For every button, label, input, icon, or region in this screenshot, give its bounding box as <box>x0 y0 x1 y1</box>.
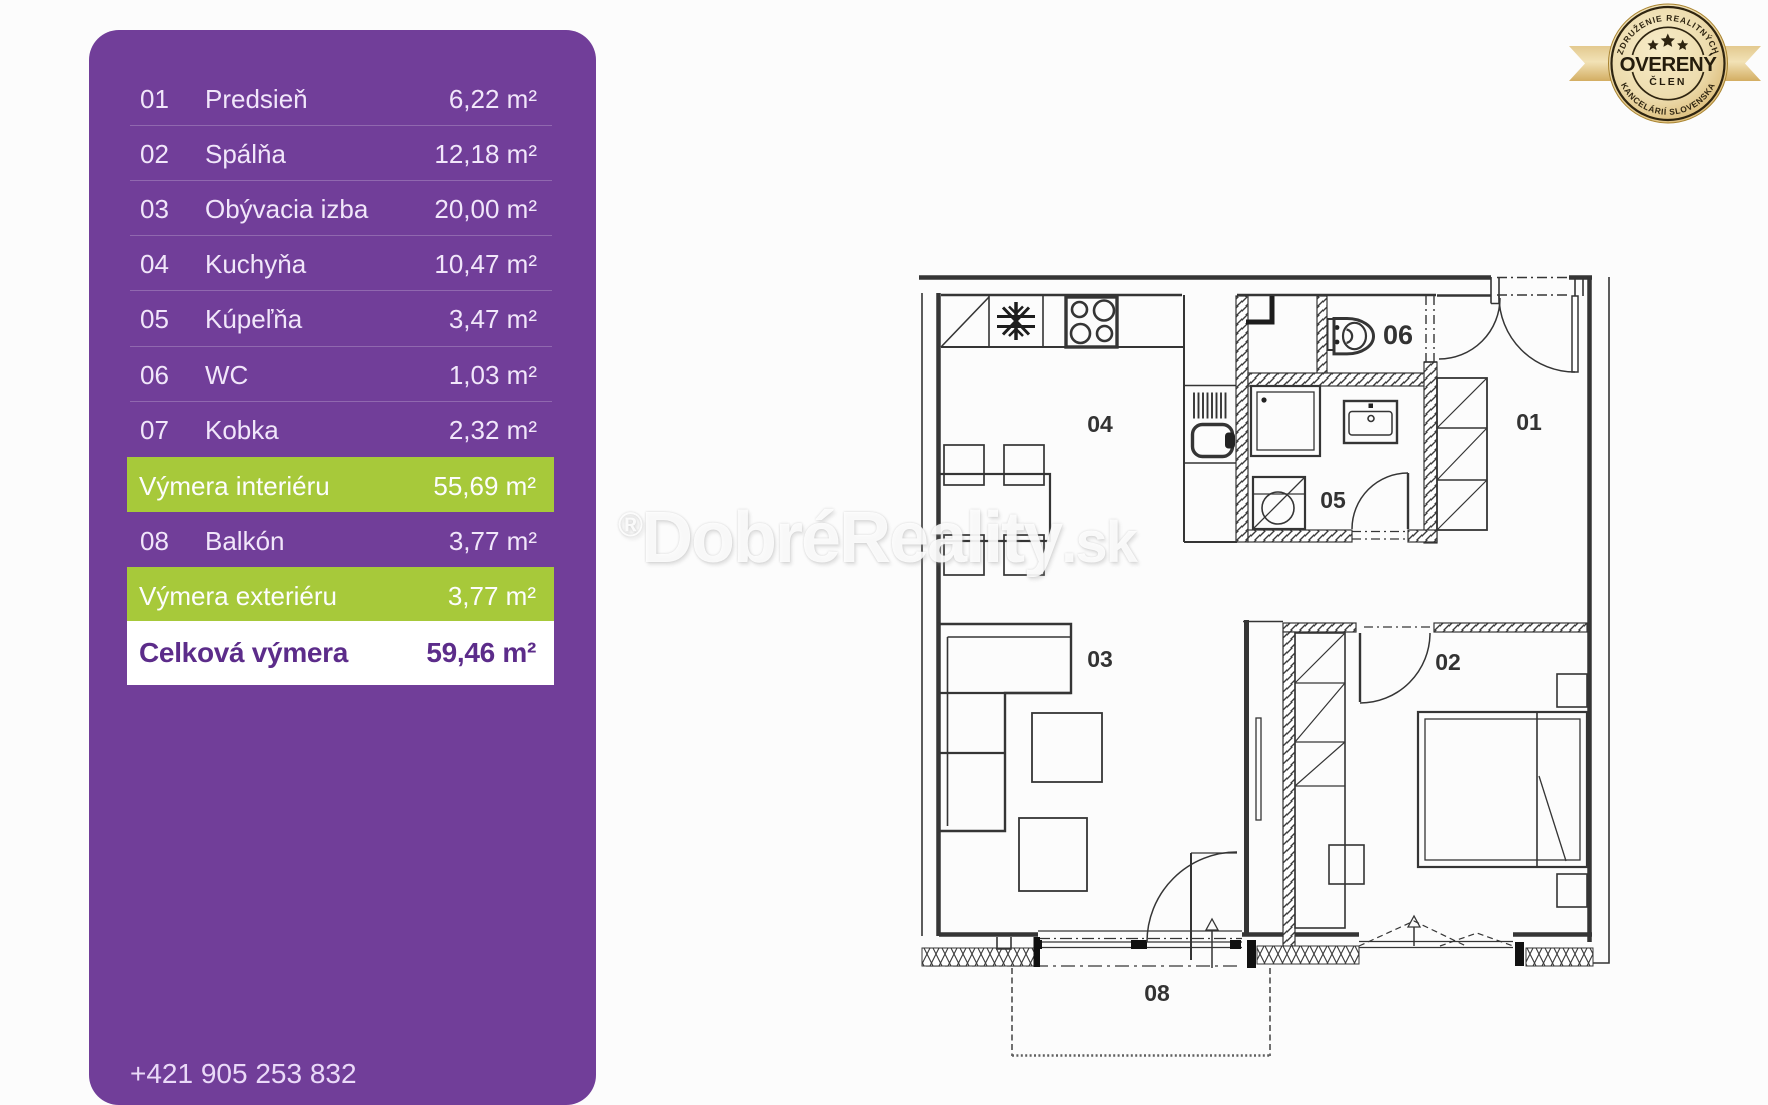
svg-text:ČLEN: ČLEN <box>1649 75 1686 88</box>
svg-text:05: 05 <box>1320 487 1346 513</box>
svg-text:08: 08 <box>1144 980 1170 1006</box>
svg-text:OVERENÝ: OVERENÝ <box>1620 52 1718 76</box>
svg-text:03: 03 <box>1087 646 1113 672</box>
svg-text:04: 04 <box>1087 411 1113 437</box>
svg-text:02: 02 <box>1435 649 1461 675</box>
svg-text:01: 01 <box>1516 409 1542 435</box>
svg-text:06: 06 <box>1383 320 1413 350</box>
